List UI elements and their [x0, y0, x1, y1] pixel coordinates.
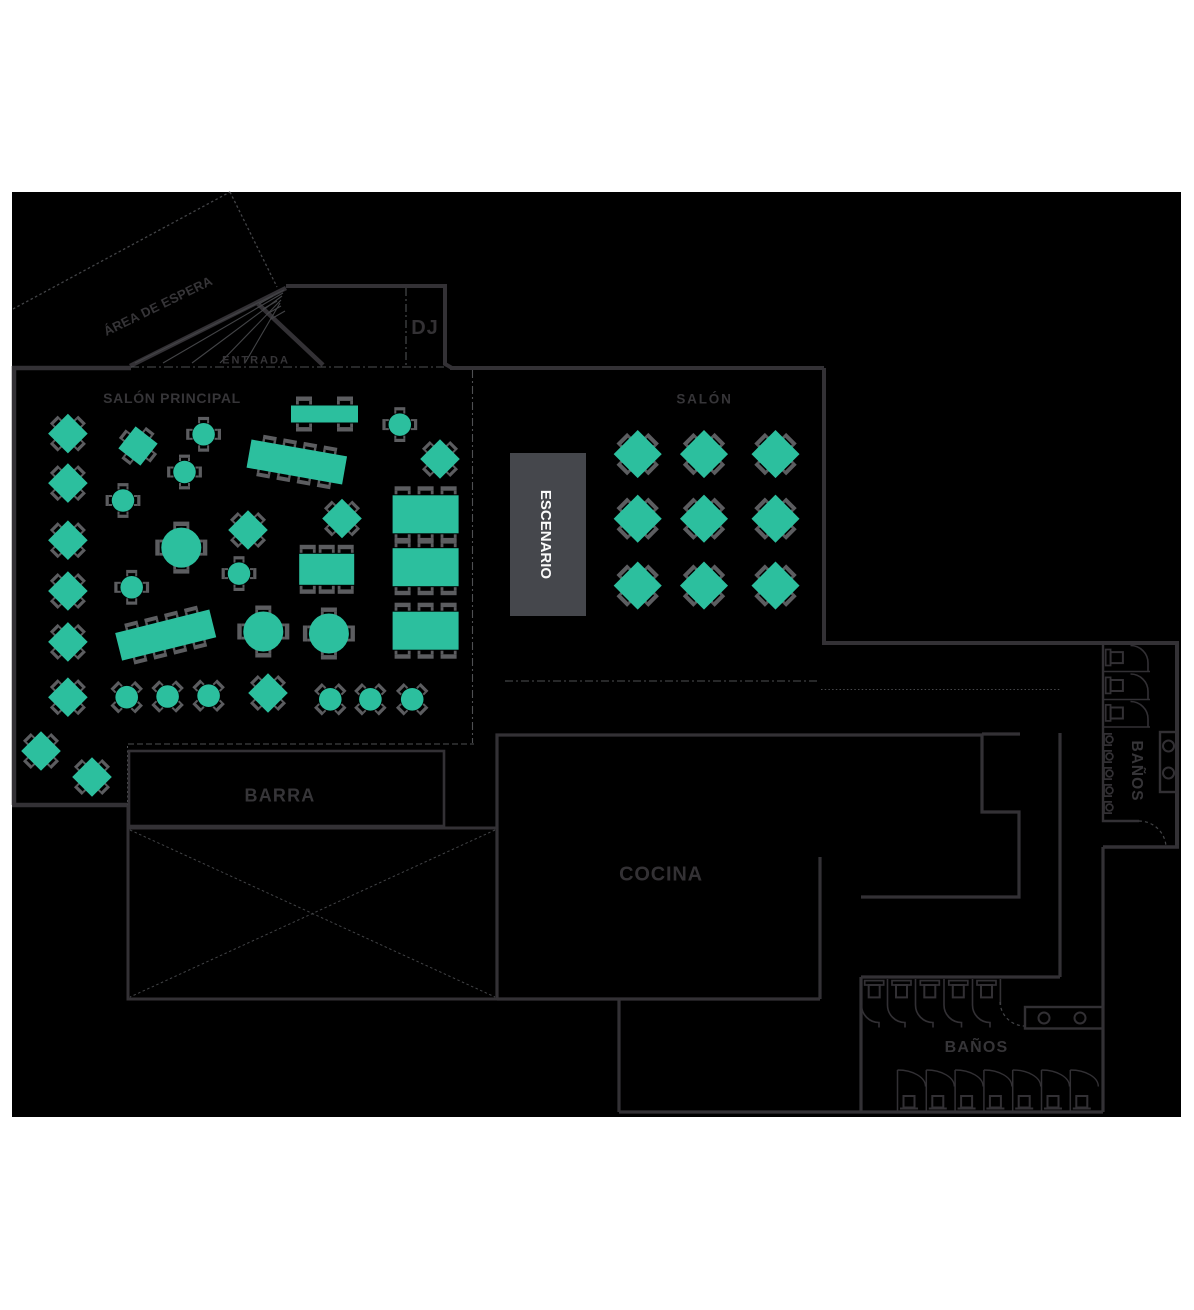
- svg-text:COCINA: COCINA: [619, 864, 703, 886]
- svg-text:SALÓN PRINCIPAL: SALÓN PRINCIPAL: [103, 389, 241, 406]
- svg-text:SALÓN: SALÓN: [676, 392, 732, 407]
- svg-text:BARRA: BARRA: [245, 786, 316, 806]
- svg-text:ESCENARIO: ESCENARIO: [537, 490, 554, 580]
- svg-text:BAÑOS: BAÑOS: [1128, 741, 1146, 802]
- svg-text:BAÑOS: BAÑOS: [945, 1036, 1009, 1056]
- svg-text:ENTRADA: ENTRADA: [222, 355, 290, 367]
- svg-text:DJ: DJ: [411, 317, 439, 339]
